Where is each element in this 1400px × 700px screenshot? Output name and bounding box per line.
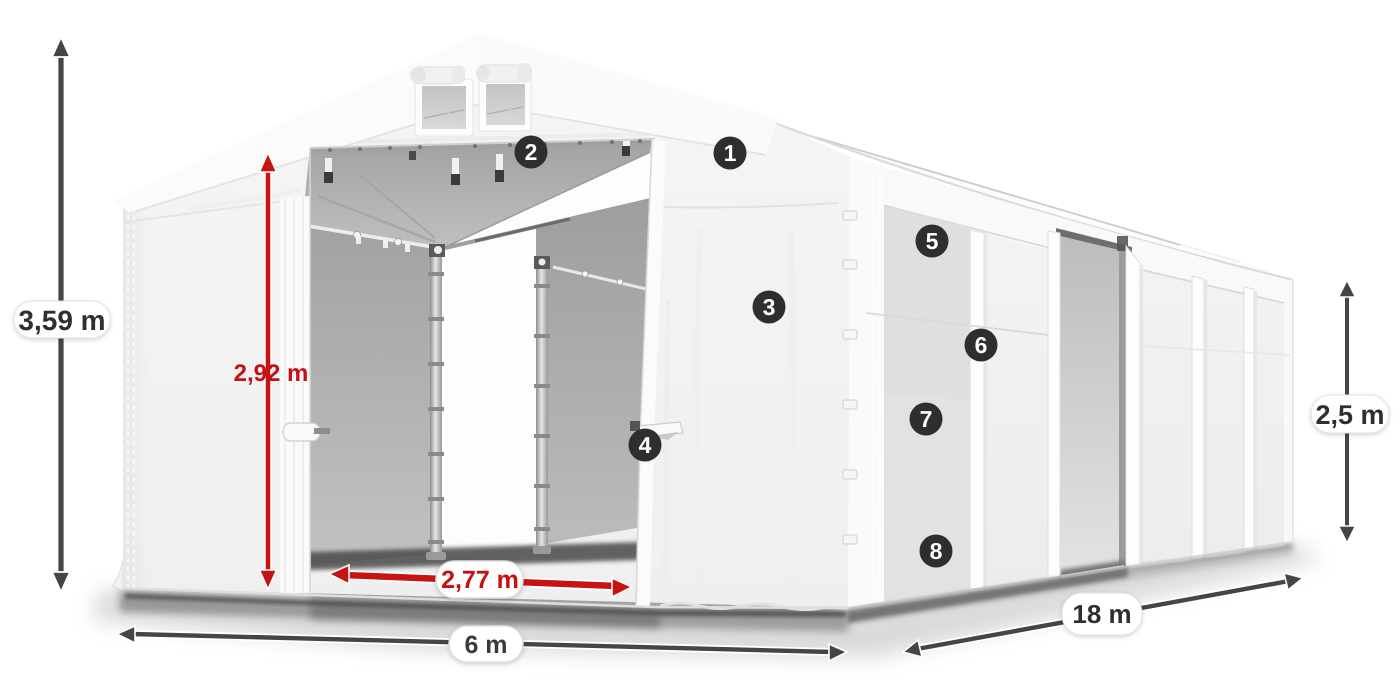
svg-text:18 m: 18 m — [1072, 599, 1131, 629]
svg-text:7: 7 — [920, 406, 933, 432]
svg-text:1: 1 — [724, 140, 737, 166]
svg-text:4: 4 — [639, 432, 652, 458]
svg-text:2: 2 — [525, 139, 538, 165]
svg-text:8: 8 — [930, 538, 943, 564]
svg-text:3: 3 — [763, 294, 776, 320]
svg-text:3,59 m: 3,59 m — [18, 305, 105, 336]
svg-text:2,77 m: 2,77 m — [441, 566, 519, 594]
svg-text:6: 6 — [975, 332, 988, 358]
svg-text:2,5 m: 2,5 m — [1315, 400, 1384, 430]
svg-text:2,92 m: 2,92 m — [234, 360, 309, 387]
svg-text:6 m: 6 m — [464, 631, 507, 659]
svg-text:5: 5 — [926, 228, 939, 254]
